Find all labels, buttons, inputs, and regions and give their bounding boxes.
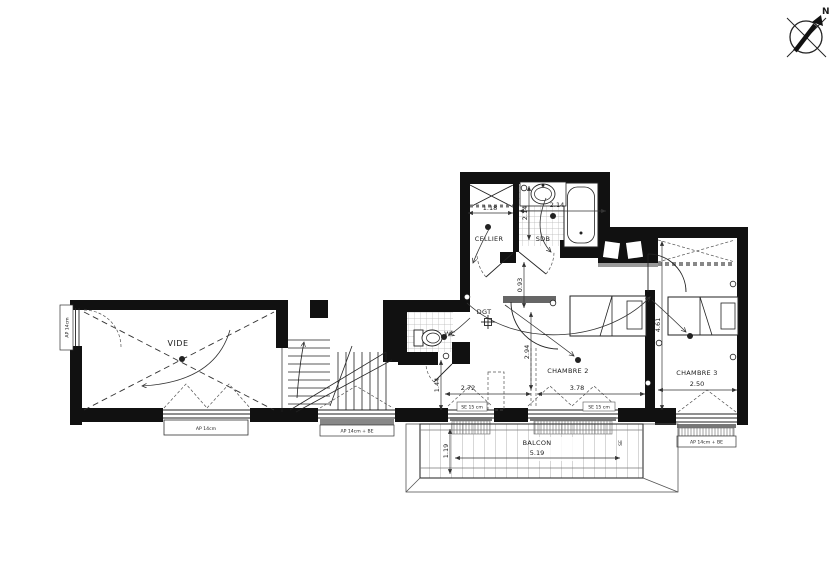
wall-wc-bottom — [398, 352, 438, 365]
wall-bottom-seg3 — [395, 408, 448, 422]
dim-chambre2-height: 2.94 — [523, 345, 531, 359]
pillow-chambre2 — [627, 301, 642, 329]
balcony-se-marker: SE — [618, 440, 624, 446]
compass: N — [787, 7, 830, 57]
window-vide-left: AP 14cm — [60, 305, 79, 350]
wall-bottom-seg2 — [250, 408, 318, 422]
dim-entry-width: 2.72 — [461, 384, 475, 392]
wc-label: WC — [444, 330, 456, 338]
floor-plan-drawing: AP 14cm AP 14cm AP 14cm + BE — [0, 0, 833, 561]
wall-wc-post — [452, 342, 470, 364]
window-chambre3-bottom: AP 14cm + BE — [676, 390, 737, 447]
dim-cellier-width: 1.18 — [483, 204, 497, 212]
window-label-vide-left: AP 14cm — [65, 317, 71, 338]
stair-up-arrow — [297, 342, 304, 398]
pillow-chambre3 — [721, 303, 735, 329]
wall-cellier-sdb-partition — [513, 184, 519, 252]
wall-vide-top — [70, 300, 288, 310]
window-label-vide-bottom: AP 14cm — [196, 426, 217, 432]
bed-chambre3 — [668, 297, 738, 335]
wall-bottom-seg1 — [70, 408, 163, 422]
north-label: N — [822, 7, 830, 17]
wall-stair-post — [310, 300, 328, 318]
closet-door-right — [626, 241, 643, 259]
wall-chambre3-right — [737, 227, 748, 425]
toilet — [414, 330, 442, 346]
wall-chambre3-top — [602, 227, 748, 238]
bathtub — [564, 183, 598, 247]
chambre2-label: CHAMBRE 2 — [547, 367, 588, 375]
staircase — [282, 340, 392, 412]
bed-chambre2 — [570, 296, 646, 336]
dim-chambre3-height: 4.61 — [654, 318, 662, 332]
closet-door-left — [603, 241, 620, 259]
sdb-label: SDB — [536, 235, 551, 243]
wall-vide-stair-divider — [276, 300, 288, 348]
chambre2-door — [511, 302, 558, 349]
wall-bottom-seg5 — [618, 408, 676, 422]
dim-balcon-width: 5.19 — [530, 449, 544, 457]
dim-balcon-height: 1.19 — [442, 444, 450, 458]
cellier-label: CELLIER — [475, 235, 504, 243]
dim-entry-height: 1.44 — [433, 378, 441, 392]
dgt-label: DGT — [477, 308, 492, 316]
closet-threshold — [598, 263, 658, 267]
dim-sdb-width: 2.14 — [550, 201, 564, 209]
dim-chambre2-width: 3.78 — [570, 384, 584, 392]
vide-void-cross — [84, 312, 274, 410]
vide-label: VIDE — [167, 339, 188, 348]
wall-bottom-seg4 — [494, 408, 528, 422]
window-label-chambre2-right: SE 15 cm — [588, 405, 610, 411]
balcon-label: BALCON — [523, 439, 552, 447]
window-vide-bottom: AP 14cm — [163, 384, 250, 435]
vmc-fan-icon — [481, 315, 495, 329]
window-label-stair-bottom: AP 14cm + BE — [340, 429, 373, 435]
chambre2-door-lintel — [503, 296, 556, 303]
wall-wc-left — [395, 312, 407, 358]
chambre2-light-curve — [505, 305, 574, 356]
dim-sdb-height: 2.14 — [521, 206, 529, 220]
wall-top-block-left — [460, 172, 470, 312]
dim-dgt-height: 0.93 — [516, 278, 524, 292]
floor-plan-page: AP 14cm AP 14cm AP 14cm + BE — [0, 0, 833, 561]
window-label-chambre3-bottom: AP 14cm + BE — [690, 440, 723, 446]
chambre3-label: CHAMBRE 3 — [676, 369, 717, 377]
dim-chambre3-width: 2.50 — [690, 380, 704, 388]
window-label-chambre2-left: SE 15 cm — [461, 405, 483, 411]
